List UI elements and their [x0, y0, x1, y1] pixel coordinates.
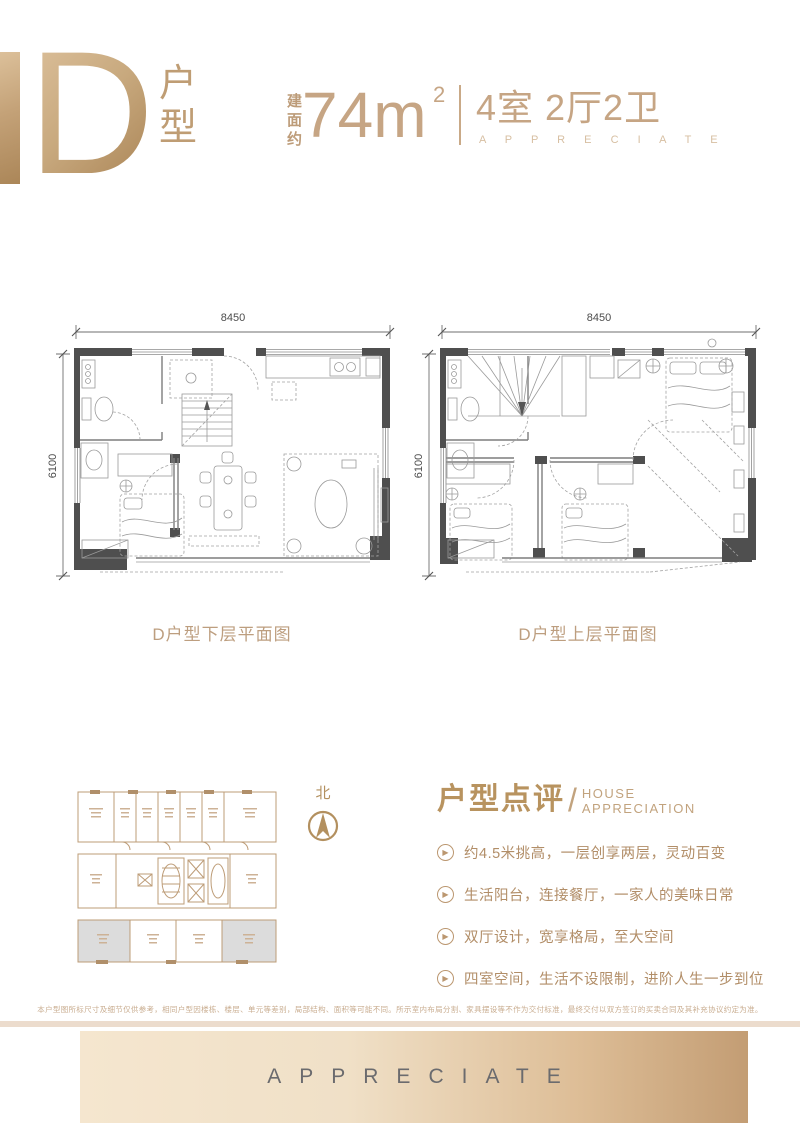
review-title-en: HOUSE APPRECIATION [582, 786, 696, 816]
floorplan-lower: 8450 6100 [44, 308, 400, 608]
unit-type-letter: D [28, 40, 168, 192]
walls [74, 348, 390, 570]
unit-type-char: 型 [159, 106, 197, 150]
caption-upper-plan: D户型上层平面图 [410, 620, 766, 645]
stairs [182, 394, 232, 446]
dim-height-label: 6100 [413, 454, 425, 478]
north-indicator: 北 [304, 786, 342, 852]
review-title-cn: 户型点评 [437, 782, 565, 818]
walls [440, 348, 756, 564]
house-review-section: 户型点评 / HOUSE APPRECIATION ▶ 约4.5米挑高，一层创享… [437, 782, 782, 1010]
floorplan-lower-drawing: 8450 6100 [44, 308, 400, 608]
bathroom-fixtures [81, 360, 212, 478]
building-key-plan [70, 784, 302, 974]
cropped-letter-bar [0, 52, 20, 184]
review-points-list: ▶ 约4.5米挑高，一层创享两层，灵动百变 ▶ 生活阳台，连接餐厅，一家人的美味… [437, 842, 782, 989]
review-point: ▶ 生活阳台，连接餐厅，一家人的美味日常 [437, 884, 782, 905]
disclaimer-text: 本户型图所标尺寸及细节仅供参考，相同户型因楼栋、楼层、单元等差别，局部结构、面积… [0, 1004, 800, 1015]
review-point: ▶ 双厅设计，宽享格局，至大空间 [437, 926, 782, 947]
north-compass-icon [304, 802, 342, 846]
floorplan-upper: 8450 6100 [410, 308, 766, 608]
play-bullet-icon: ▶ [437, 844, 454, 861]
divider-strip [0, 1021, 800, 1027]
dim-height-label: 6100 [47, 454, 59, 478]
rooms-summary: 4室 2厅2卫 [476, 88, 661, 128]
unit-type-char: 户 [159, 62, 197, 106]
area-value: 74m [302, 86, 427, 144]
banner-text: APPRECIATE [249, 1065, 578, 1089]
north-label: 北 [304, 786, 342, 802]
bathroom-fixtures [447, 360, 479, 478]
floorplan-upper-drawing: 8450 6100 [410, 308, 766, 608]
area-superscript: 2 [433, 82, 445, 108]
open-room [648, 420, 744, 556]
key-plan-drawing [70, 784, 302, 974]
kitchen [266, 356, 380, 400]
unit-type-label: 户 型 [159, 62, 197, 150]
dim-width-label: 8450 [587, 312, 611, 324]
dim-width-label: 8450 [221, 312, 245, 324]
flyer-page: D 户 型 建面约 74m 2 4室 2厅2卫 A P P R E C I A … [0, 0, 800, 1123]
bedroom-3 [562, 464, 633, 560]
rooms-subtitle: A P P R E C I A T E [479, 134, 726, 146]
caption-lower-plan: D户型下层平面图 [44, 620, 400, 645]
highlighted-unit-d-left [78, 920, 130, 962]
balcony [448, 540, 740, 572]
play-bullet-icon: ▶ [437, 886, 454, 903]
review-title-slash: / [568, 782, 577, 818]
highlighted-unit-d-right [222, 920, 276, 962]
review-point: ▶ 四室空间，生活不设限制，进阶人生一步到位 [437, 968, 782, 989]
header-divider [459, 85, 461, 145]
play-bullet-icon: ▶ [437, 928, 454, 945]
review-title: 户型点评 / HOUSE APPRECIATION [437, 782, 782, 818]
master-bedroom [666, 358, 744, 432]
play-bullet-icon: ▶ [437, 970, 454, 987]
bottom-banner: APPRECIATE [80, 1031, 748, 1123]
closets [562, 356, 733, 416]
dining-set [189, 452, 259, 546]
stairs [468, 356, 560, 416]
review-point: ▶ 约4.5米挑高，一层创享两层，灵动百变 [437, 842, 782, 863]
